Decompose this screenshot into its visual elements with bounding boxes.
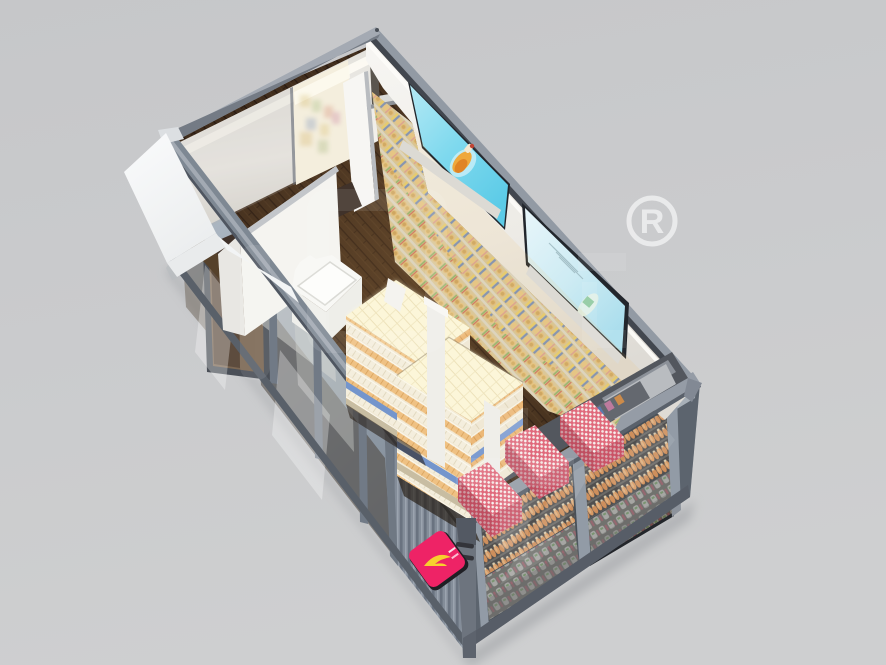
svg-text:R: R <box>640 203 665 241</box>
